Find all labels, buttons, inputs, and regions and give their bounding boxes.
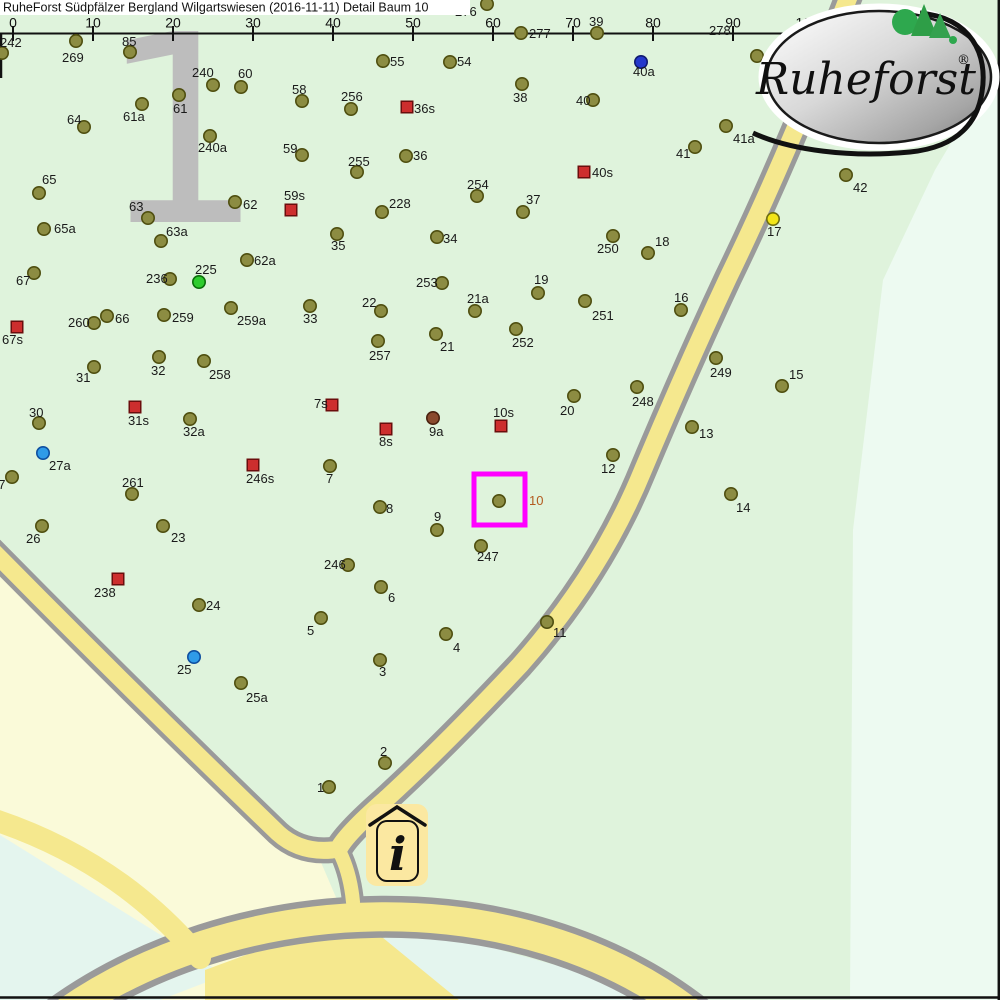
tree-label-3: 3 — [379, 664, 386, 679]
tree-marker-32[interactable] — [153, 351, 165, 363]
tree-marker-249[interactable] — [710, 352, 722, 364]
tree-label-2: 2 — [380, 744, 387, 759]
tree-label-228: 228 — [389, 196, 411, 211]
tree-label-16: 16 — [674, 290, 688, 305]
tree-marker-1[interactable] — [323, 781, 335, 793]
tree-label-64: 64 — [67, 112, 81, 127]
tree-label-23: 23 — [171, 530, 185, 545]
tree-label-34: 34 — [443, 231, 457, 246]
tree-marker-252[interactable] — [510, 323, 522, 335]
tree-label-35: 35 — [331, 238, 345, 253]
tree-marker-13[interactable] — [686, 421, 698, 433]
tree-marker-62a[interactable] — [241, 254, 253, 266]
tree-label-8s: 8s — [379, 434, 393, 449]
tree-label-32: 32 — [151, 363, 165, 378]
tree-label-259a: 259a — [237, 313, 267, 328]
tree-label-4: 4 — [453, 640, 460, 655]
map-window: 1 0102030405060708090100m 24226985276277… — [0, 0, 1000, 1000]
tree-label-247: 247 — [477, 549, 499, 564]
tree-label-59: 59 — [283, 141, 297, 156]
tree-label-65: 65 — [42, 172, 56, 187]
tree-marker-276[interactable] — [481, 0, 493, 10]
tree-marker-6[interactable] — [375, 581, 387, 593]
scale-tick-label: 60 — [485, 15, 501, 31]
tree-label-246s: 246s — [246, 471, 275, 486]
logo-tree-dot — [949, 36, 957, 44]
tree-marker-20[interactable] — [568, 390, 580, 402]
tree-marker-259[interactable] — [158, 309, 170, 321]
tree-marker-24[interactable] — [193, 599, 205, 611]
tree-marker-66[interactable] — [101, 310, 113, 322]
tree-marker-12[interactable] — [607, 449, 619, 461]
tree-marker-16[interactable] — [675, 304, 687, 316]
grave-marker-10s[interactable] — [495, 420, 507, 432]
tree-label-65a: 65a — [54, 221, 76, 236]
tree-label-21: 21 — [440, 339, 454, 354]
tree-label-18: 18 — [655, 234, 669, 249]
grave-marker-7s[interactable] — [326, 399, 338, 411]
tree-label-30: 30 — [29, 405, 43, 420]
logo-brand-text: Ruheforst — [755, 54, 976, 105]
map-title: RuheForst Südpfälzer Bergland Wilgartswi… — [3, 1, 428, 15]
tree-label-259: 259 — [172, 310, 194, 325]
tree-label-9: 9 — [434, 509, 441, 524]
tree-label-254: 254 — [467, 177, 489, 192]
map-canvas[interactable]: 1 0102030405060708090100m 24226985276277… — [0, 0, 1000, 1000]
tree-label-61: 61 — [173, 101, 187, 116]
tree-label-236: 236 — [146, 271, 168, 286]
tree-label-249: 249 — [710, 365, 732, 380]
tree-label-9a: 9a — [429, 424, 444, 439]
tree-label-260: 260 — [68, 315, 90, 330]
tree-label-15: 15 — [789, 367, 803, 382]
scale-tick-label: 40 — [325, 15, 341, 31]
info-point-marker: i — [366, 804, 428, 886]
tree-marker-21a[interactable] — [469, 305, 481, 317]
grave-marker-59s[interactable] — [285, 204, 297, 216]
tree-label-238: 238 — [94, 585, 116, 600]
tree-label-31s: 31s — [128, 413, 149, 428]
tree-label-37: 37 — [526, 192, 540, 207]
tree-label-59s: 59s — [284, 188, 305, 203]
scale-tick-label: 20 — [165, 15, 181, 31]
tree-label-17: 17 — [767, 224, 781, 239]
title-bar: RuheForst Südpfälzer Bergland Wilgartswi… — [0, 0, 470, 15]
grave-marker-36s[interactable] — [401, 101, 413, 113]
tree-label-11: 11 — [553, 625, 567, 640]
tree-label-13: 13 — [699, 426, 713, 441]
tree-marker-42[interactable] — [840, 169, 852, 181]
tree-label-10: 10 — [529, 493, 543, 508]
tree-label-8: 8 — [386, 501, 393, 516]
tree-label-32a: 32a — [183, 424, 205, 439]
tree-label-257: 257 — [369, 348, 391, 363]
tree-marker-38[interactable] — [516, 78, 528, 90]
grave-marker-40s[interactable] — [578, 166, 590, 178]
tree-label-22: 22 — [362, 295, 376, 310]
tree-label-66: 66 — [115, 311, 129, 326]
tree-label-277: 277 — [529, 26, 551, 41]
tree-marker-65a[interactable] — [38, 223, 50, 235]
tree-label-240: 240 — [192, 65, 214, 80]
tree-marker-277[interactable] — [515, 27, 527, 39]
scale-tick-label: 10 — [85, 15, 101, 31]
tree-label-269: 269 — [62, 50, 84, 65]
tree-label-67: 67 — [16, 273, 30, 288]
tree-marker-269[interactable] — [70, 35, 82, 47]
tree-marker-36[interactable] — [400, 150, 412, 162]
tree-marker-54[interactable] — [444, 56, 456, 68]
tree-label-54: 54 — [457, 54, 471, 69]
tree-marker-55[interactable] — [377, 55, 389, 67]
tree-marker-10[interactable] — [493, 495, 505, 507]
tree-label-60: 60 — [238, 66, 252, 81]
tree-label-39: 39 — [589, 14, 603, 29]
tree-label-12: 12 — [601, 461, 615, 476]
tree-label-25: 25 — [177, 662, 191, 677]
tree-marker-256[interactable] — [345, 103, 357, 115]
tree-marker-15[interactable] — [776, 380, 788, 392]
tree-marker-62[interactable] — [229, 196, 241, 208]
tree-label-58: 58 — [292, 82, 306, 97]
tree-label-255: 255 — [348, 154, 370, 169]
tree-label-240a: 240a — [198, 140, 228, 155]
tree-label-278: 278 — [709, 23, 731, 38]
tree-marker-19[interactable] — [532, 287, 544, 299]
tree-label-5: 5 — [307, 623, 314, 638]
tree-label-26: 26 — [26, 531, 40, 546]
tree-label-63a: 63a — [166, 224, 188, 239]
tree-marker-8[interactable] — [374, 501, 386, 513]
scale-tick-label: 50 — [405, 15, 421, 31]
tree-label-252: 252 — [512, 335, 534, 350]
tree-marker-240[interactable] — [207, 79, 219, 91]
tree-label-33: 33 — [303, 311, 317, 326]
tree-label-14: 14 — [736, 500, 750, 515]
tree-label-248: 248 — [632, 394, 654, 409]
tree-label-36: 36 — [413, 148, 427, 163]
tree-label-40s: 40s — [592, 165, 613, 180]
tree-marker-34[interactable] — [431, 231, 443, 243]
tree-marker-25a[interactable] — [235, 677, 247, 689]
tree-label-250: 250 — [597, 241, 619, 256]
tree-marker-27[interactable] — [6, 471, 18, 483]
tree-label-25a: 25a — [246, 690, 268, 705]
tree-label-62: 62 — [243, 197, 257, 212]
tree-label-10s: 10s — [493, 405, 514, 420]
tree-label-256: 256 — [341, 89, 363, 104]
tree-label-258: 258 — [209, 367, 231, 382]
tree-marker-228[interactable] — [376, 206, 388, 218]
tree-label-7: 7 — [326, 471, 333, 486]
tree-marker-4[interactable] — [440, 628, 452, 640]
tree-label-24: 24 — [206, 598, 220, 613]
tree-marker-251[interactable] — [579, 295, 591, 307]
tree-label-38: 38 — [513, 90, 527, 105]
tree-marker-23[interactable] — [157, 520, 169, 532]
tree-marker-259a[interactable] — [225, 302, 237, 314]
scale-tick-label: 80 — [645, 15, 661, 31]
tree-marker-18[interactable] — [642, 247, 654, 259]
tree-marker-258[interactable] — [198, 355, 210, 367]
tree-marker-37[interactable] — [517, 206, 529, 218]
info-marker-i: i — [389, 827, 406, 881]
tree-label-36s: 36s — [414, 101, 435, 116]
tree-marker-14[interactable] — [725, 488, 737, 500]
tree-marker-9a[interactable] — [427, 412, 439, 424]
tree-label-21a: 21a — [467, 291, 489, 306]
tree-marker-27a[interactable] — [37, 447, 49, 459]
scale-tick-label: 70 — [565, 15, 581, 31]
tree-label-41: 41 — [676, 146, 690, 161]
tree-marker-22[interactable] — [375, 305, 387, 317]
tree-label-67s: 67s — [2, 332, 23, 347]
tree-marker-11[interactable] — [541, 616, 553, 628]
tree-label-27a: 27a — [49, 458, 71, 473]
tree-marker-257[interactable] — [372, 335, 384, 347]
tree-marker-225[interactable] — [193, 276, 205, 288]
tree-label-19: 19 — [534, 272, 548, 287]
scale-tick-label: 30 — [245, 15, 261, 31]
tree-label-6: 6 — [388, 590, 395, 605]
tree-marker-41a[interactable] — [720, 120, 732, 132]
tree-marker-248[interactable] — [631, 381, 643, 393]
tree-marker-59[interactable] — [296, 149, 308, 161]
tree-label-246: 246 — [324, 557, 346, 572]
grave-marker-238[interactable] — [112, 573, 124, 585]
tree-label-41a: 41a — [733, 131, 755, 146]
tree-label-225: 225 — [195, 262, 217, 277]
tree-marker-60[interactable] — [235, 81, 247, 93]
tree-label-251: 251 — [592, 308, 614, 323]
logo-registered-mark: ® — [957, 53, 970, 68]
tree-marker-9[interactable] — [431, 524, 443, 536]
tree-label-7s: 7s — [314, 396, 328, 411]
tree-label-42: 42 — [853, 180, 867, 195]
tree-marker-61[interactable] — [173, 89, 185, 101]
tree-label-261: 261 — [122, 475, 144, 490]
tree-label-55: 55 — [390, 54, 404, 69]
tree-label-242: 242 — [0, 35, 22, 50]
tree-label-40: 40 — [576, 93, 590, 108]
grave-marker-31s[interactable] — [129, 401, 141, 413]
tree-marker-5[interactable] — [315, 612, 327, 624]
grave-marker-246s[interactable] — [247, 459, 259, 471]
tree-label-253: 253 — [416, 275, 438, 290]
scale-tick-label: 0 — [9, 15, 17, 31]
tree-marker-63[interactable] — [142, 212, 154, 224]
tree-label-31: 31 — [76, 370, 90, 385]
tree-label-85: 85 — [122, 34, 136, 49]
tree-label-27: 27 — [0, 477, 5, 492]
tree-label-61a: 61a — [123, 109, 145, 124]
tree-label-20: 20 — [560, 403, 574, 418]
tree-label-62a: 62a — [254, 253, 276, 268]
tree-label-63: 63 — [129, 199, 143, 214]
tree-label-40a: 40a — [633, 64, 655, 79]
tree-label-1: 1 — [317, 780, 324, 795]
tree-marker-41[interactable] — [689, 141, 701, 153]
tree-marker-65[interactable] — [33, 187, 45, 199]
